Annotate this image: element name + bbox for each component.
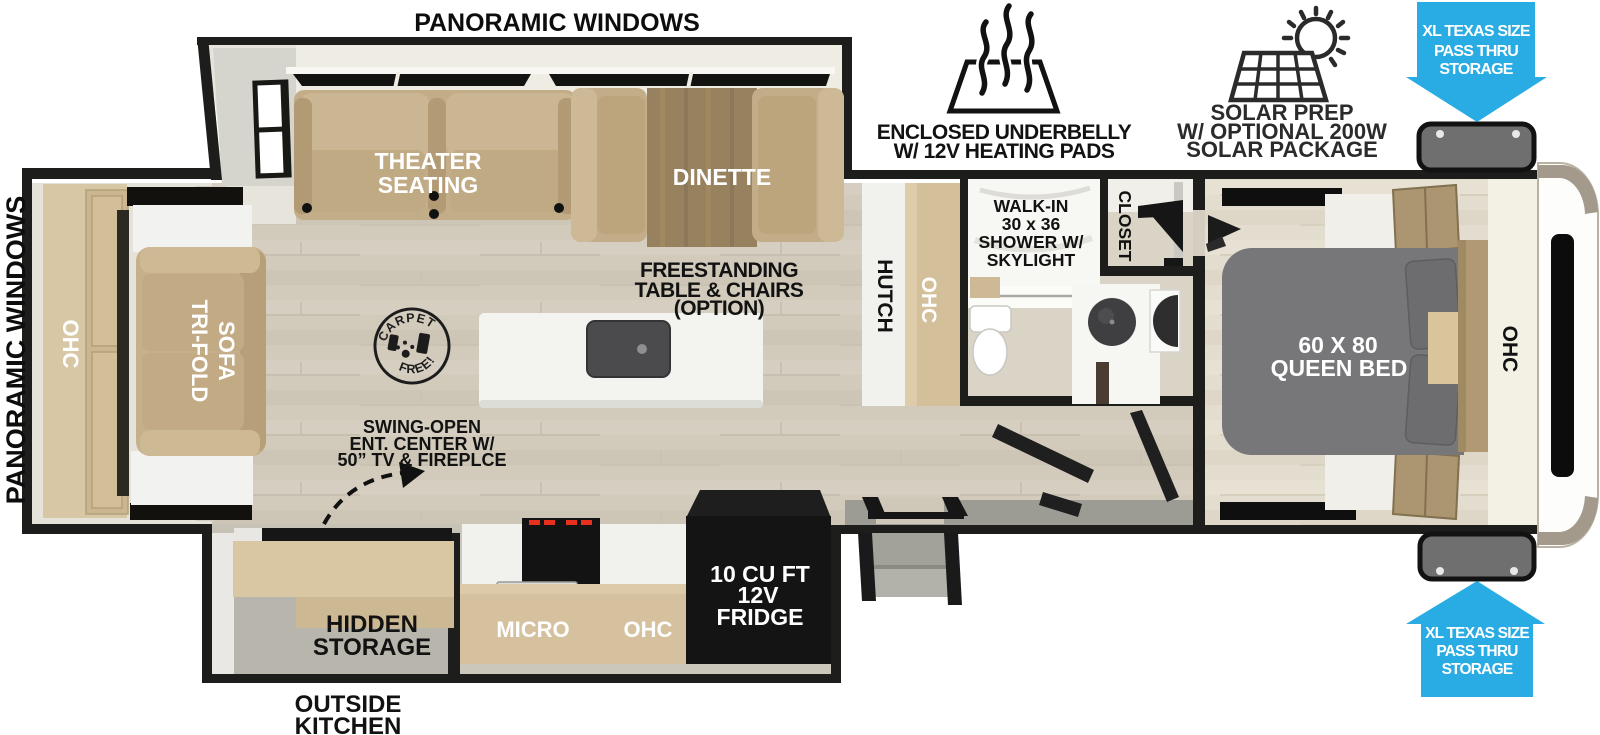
svg-text:THEATER: THEATER [375, 148, 482, 174]
svg-text:MICRO: MICRO [496, 617, 569, 642]
svg-text:FRIDGE: FRIDGE [717, 604, 804, 630]
svg-text:STORAGE: STORAGE [313, 634, 431, 661]
svg-text:WALK-IN: WALK-IN [994, 196, 1069, 216]
svg-text:OHC: OHC [624, 617, 673, 642]
svg-text:QUEEN BED: QUEEN BED [1271, 355, 1408, 381]
svg-text:STORAGE: STORAGE [1442, 661, 1513, 678]
svg-text:SKYLIGHT: SKYLIGHT [987, 250, 1076, 270]
svg-text:30 x 36: 30 x 36 [1002, 214, 1061, 234]
svg-text:DINETTE: DINETTE [673, 164, 771, 190]
svg-text:KITCHEN: KITCHEN [295, 713, 402, 735]
svg-text:(OPTION): (OPTION) [674, 297, 765, 320]
svg-text:PANORAMIC WINDOWS: PANORAMIC WINDOWS [414, 9, 700, 37]
svg-text:PANORAMIC WINDOWS: PANORAMIC WINDOWS [1, 196, 31, 504]
svg-text:SOFA: SOFA [214, 321, 239, 381]
svg-text:50” TV & FIREPLCE: 50” TV & FIREPLCE [337, 450, 506, 470]
svg-text:W/ 12V HEATING PADS: W/ 12V HEATING PADS [894, 140, 1115, 163]
svg-text:SHOWER W/: SHOWER W/ [979, 232, 1084, 252]
svg-text:STORAGE: STORAGE [1439, 61, 1513, 78]
svg-text:TRI-FOLD: TRI-FOLD [187, 300, 212, 403]
svg-text:PASS THRU: PASS THRU [1434, 43, 1518, 60]
svg-text:OHC: OHC [917, 277, 940, 324]
svg-text:CLOSET: CLOSET [1115, 191, 1135, 262]
svg-text:SEATING: SEATING [378, 172, 479, 198]
svg-text:XL TEXAS SIZE: XL TEXAS SIZE [1422, 23, 1531, 40]
svg-text:OHC: OHC [58, 320, 83, 369]
svg-text:PASS THRU: PASS THRU [1436, 643, 1518, 660]
svg-text:SOLAR PACKAGE: SOLAR PACKAGE [1186, 137, 1378, 162]
svg-text:OHC: OHC [1498, 326, 1521, 373]
svg-text:XL TEXAS SIZE: XL TEXAS SIZE [1425, 625, 1529, 642]
svg-text:HUTCH: HUTCH [873, 259, 896, 333]
